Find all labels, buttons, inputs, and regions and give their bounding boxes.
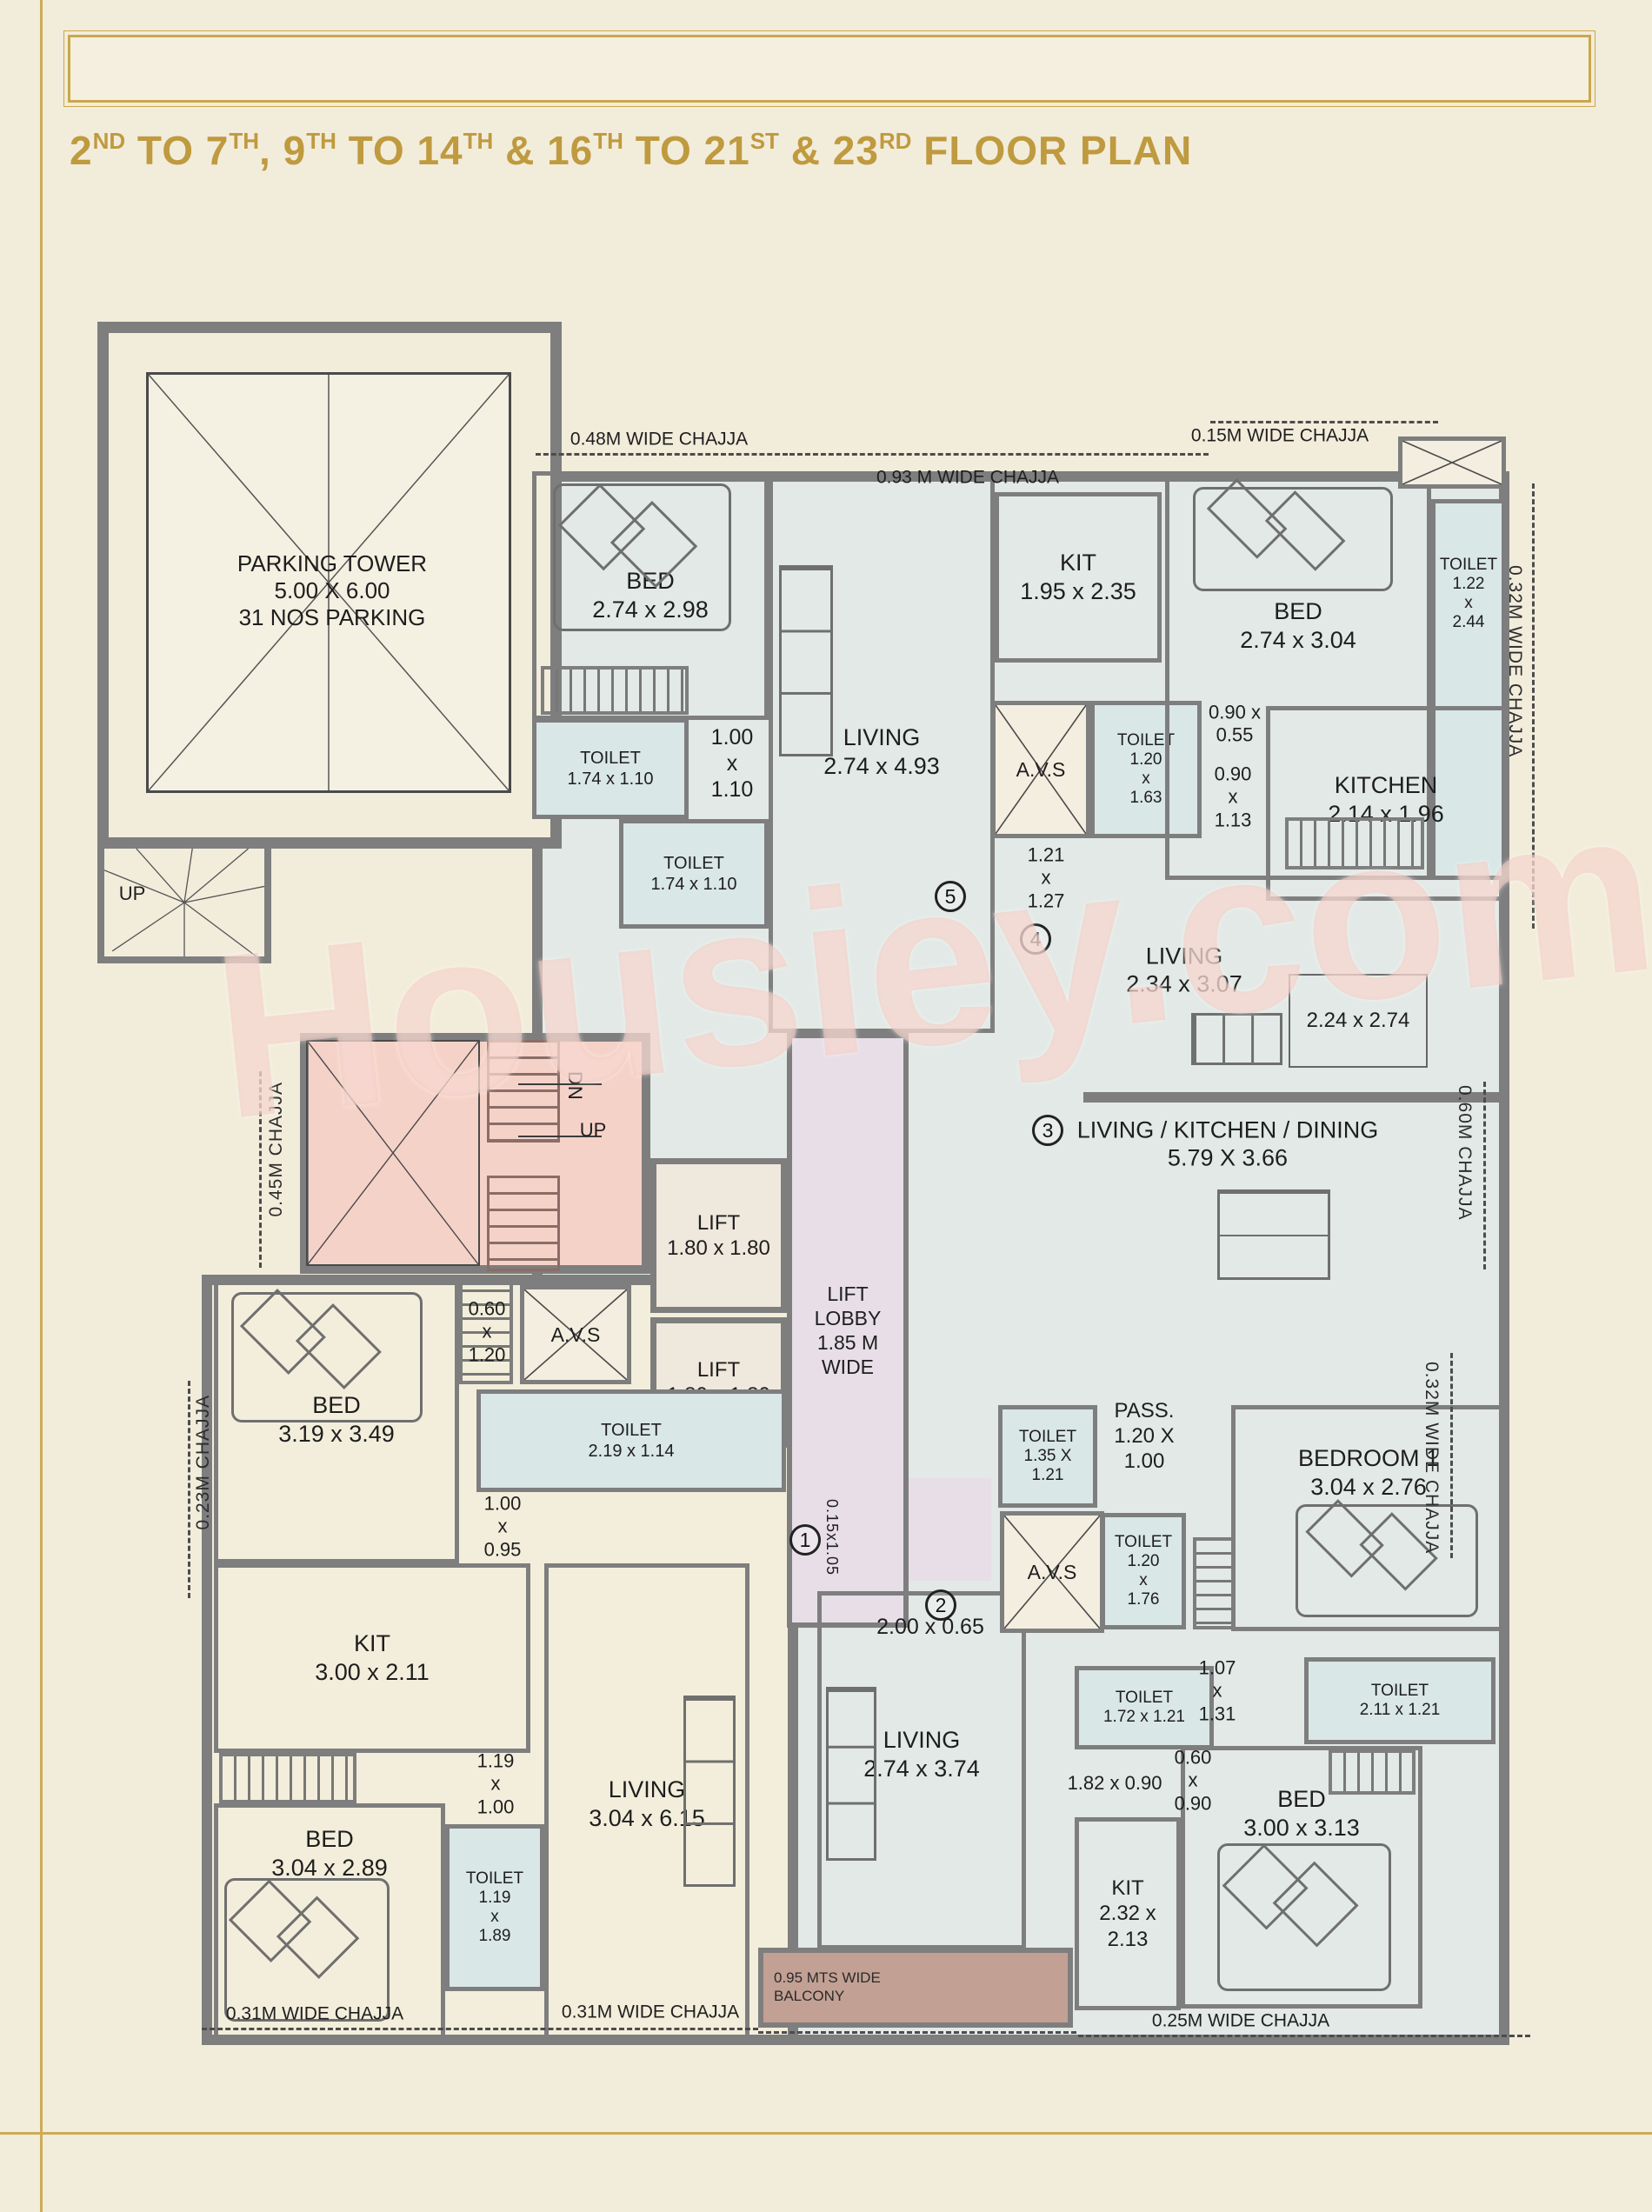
chajja-dash-right-top xyxy=(1532,483,1535,929)
living-bottom-mid-label: LIVING 2.74 x 3.74 xyxy=(863,1726,980,1783)
passage-label: PASS. 1.20 X 1.00 xyxy=(1114,1399,1174,1474)
chajja-label-top-left: 0.48M WIDE CHAJJA xyxy=(570,428,748,450)
duct-top-right xyxy=(1398,436,1506,489)
toilet-bottom-right-2-label: TOILET 2.11 x 1.21 xyxy=(1360,1682,1441,1720)
dim-015-105-vertical: 0.15x1.05 xyxy=(823,1499,841,1576)
page-title: 2ND TO 7TH, 9TH TO 14TH & 16TH TO 21ST &… xyxy=(70,127,1192,174)
dim-182-090: 1.82 x 0.90 xyxy=(1068,1772,1162,1795)
chajja-dash-top-left xyxy=(536,453,788,456)
rug-dims-label: 2.24 x 2.74 xyxy=(1307,1008,1410,1033)
chajja-dash-left-low xyxy=(188,1381,190,1598)
kit-bottom-right-label: KIT 2.32 x 2.13 xyxy=(1079,1876,1176,1952)
chajja-label-top-right: 0.15M WIDE CHAJJA xyxy=(1191,424,1369,446)
balcony: 0.95 MTS WIDE BALCONY xyxy=(758,1948,1073,2028)
chajja-label-bottom-left: 0.31M WIDE CHAJJA xyxy=(226,2002,403,2024)
stair-roof-cross xyxy=(306,1040,480,1266)
dim-121-127: 1.21 x 1.27 xyxy=(1028,843,1065,912)
toilet-bottom-right-1-label: TOILET 1.72 x 1.21 xyxy=(1103,1689,1185,1727)
frame-left-gold-line xyxy=(40,0,43,2212)
floor-plan-page: { "page": { "title_segments": [ {"t":"2"… xyxy=(0,0,1652,2212)
bed-bottom-left-label: BED 3.04 x 2.89 xyxy=(271,1825,388,1882)
dim-200-065: 2.00 x 0.65 xyxy=(876,1614,984,1640)
passage-top-left-dims: 1.00 x 1.10 xyxy=(711,724,754,803)
toilet-bottom-left-label: TOILET 1.19 x 1.89 xyxy=(466,1869,523,1945)
living-top-left-label: LIVING 2.74 x 4.93 xyxy=(823,723,940,781)
frame-top-gold-box xyxy=(68,35,1591,103)
balcony-label: 0.95 MTS WIDE BALCONY xyxy=(774,1969,881,2005)
bed-icon xyxy=(553,483,731,631)
kit-mid-left-room: KIT 3.00 x 2.11 xyxy=(214,1563,530,1753)
chajja-label-left-up: 0.45M CHAJJA xyxy=(266,1082,287,1217)
stair-dn-arrow-line xyxy=(518,1083,602,1085)
kit-mid-left-label: KIT 3.00 x 2.11 xyxy=(315,1629,430,1687)
living-kitchen-dining-label: LIVING / KITCHEN / DINING 5.79 X 3.66 xyxy=(1077,1116,1379,1173)
chajja-label-right-mid: 0.60M CHAJJA xyxy=(1454,1085,1475,1221)
chajja-label-left-low: 0.23M CHAJJA xyxy=(193,1395,214,1530)
avs-duct-2: A.V.S xyxy=(520,1285,631,1384)
toilet-bottom-right-1-room: TOILET 1.72 x 1.21 xyxy=(1075,1666,1214,1749)
chajja-label-right-top: 0.32M WIDE CHAJJA xyxy=(1504,565,1525,757)
unit-circle-1: 1 xyxy=(789,1524,821,1556)
toilet-core-label: TOILET 2.19 x 1.14 xyxy=(589,1420,675,1462)
chajja-dash-right-low xyxy=(1450,1353,1453,1558)
wardrobe-hatch xyxy=(541,666,689,715)
wall-living-lkd xyxy=(1083,1092,1509,1103)
bed-icon xyxy=(1193,487,1393,591)
chajja-label-right-low: 0.32M WIDE CHAJJA xyxy=(1421,1362,1442,1554)
toilet-passage-room: TOILET 1.35 X 1.21 xyxy=(998,1405,1097,1508)
unit-circle-3: 3 xyxy=(1032,1115,1063,1146)
wardrobe-hatch xyxy=(219,1753,356,1803)
ladder-hatch-bedroom1 xyxy=(1193,1537,1235,1629)
lift-lobby-extension xyxy=(909,1478,991,1581)
bedroom1-label: BEDROOM 1 3.04 x 2.76 xyxy=(1298,1444,1439,1502)
bed-icon xyxy=(224,1878,390,2022)
avs-duct-3-label: A.V.S xyxy=(1028,1560,1077,1584)
dim-090-113: 0.90 x 1.13 xyxy=(1215,763,1252,831)
parking-tower-label: PARKING TOWER 5.00 X 6.00 31 NOS PARKING xyxy=(237,550,427,632)
avs-duct-1: A.V.S xyxy=(991,701,1090,838)
sofa-icon xyxy=(1191,1013,1282,1065)
toilet-passage-label: TOILET 1.35 X 1.21 xyxy=(1019,1428,1076,1485)
chajja-dash-bottom-mid xyxy=(758,2031,1076,2034)
dim-119-100: 1.19 x 1.00 xyxy=(477,1749,515,1818)
toilet-bottom-left-room: TOILET 1.19 x 1.89 xyxy=(445,1824,544,1991)
kitchen-top-right-room: KITCHEN 2.14 x 1.96 xyxy=(1266,706,1506,901)
stair-flight-upper xyxy=(487,1040,560,1143)
lift-1: LIFT 1.80 x 1.80 xyxy=(650,1158,787,1313)
wardrobe-hatch xyxy=(1285,817,1424,869)
chajja-dash-top-mid xyxy=(789,453,1209,456)
chajja-dash-right-mid xyxy=(1483,1082,1486,1269)
toilet-top-left-2-room: TOILET 1.74 x 1.10 xyxy=(619,819,769,929)
dim-107-131: 1.07 x 1.31 xyxy=(1199,1656,1236,1725)
toilet-bedroom1-label: TOILET 1.20 x 1.76 xyxy=(1115,1533,1172,1609)
dim-060-090: 0.60 x 0.90 xyxy=(1175,1746,1212,1815)
kit-bottom-right-room: KIT 2.32 x 2.13 xyxy=(1075,1817,1181,2010)
unit-circle-4: 4 xyxy=(1020,923,1051,955)
dining-table-icon xyxy=(1217,1189,1330,1280)
unit-circle-5: 5 xyxy=(935,881,966,912)
bed-icon xyxy=(1217,1843,1391,1991)
sofa-icon xyxy=(826,1687,876,1861)
toilet-top-left-1-label: TOILET 1.74 x 1.10 xyxy=(568,748,654,790)
chajja-label-top-mid: 0.93 M WIDE CHAJJA xyxy=(876,466,1059,488)
stair-up-label: UP xyxy=(580,1119,607,1142)
toilet-top-left-1-room: TOILET 1.74 x 1.10 xyxy=(532,718,689,819)
chajja-dash-top-right xyxy=(1210,421,1438,423)
rug-area: 2.24 x 2.74 xyxy=(1289,974,1428,1068)
toilet-bottom-right-2-room: TOILET 2.11 x 1.21 xyxy=(1304,1657,1495,1744)
stair-flight-lower xyxy=(487,1176,560,1271)
avs-duct-2-label: A.V.S xyxy=(551,1323,601,1347)
frame-bottom-gold-line xyxy=(0,2132,1652,2135)
toilet-top-right-label: TOILET 1.22 x 2.44 xyxy=(1440,556,1497,631)
chajja-dash-left-up xyxy=(259,1071,262,1268)
sofa-icon xyxy=(779,565,833,756)
sofa-icon xyxy=(683,1696,736,1887)
avs-duct-3: A.V.S xyxy=(1000,1511,1104,1633)
unit-circle-2: 2 xyxy=(925,1589,956,1621)
bed-top-right-label: BED 2.74 x 3.04 xyxy=(1240,597,1356,655)
stair-dn-label: DN xyxy=(563,1071,586,1101)
toilet-top-left-2-label: TOILET 1.74 x 1.10 xyxy=(651,853,737,896)
lift-lobby-label: LIFT LOBBY 1.85 M WIDE xyxy=(792,1282,903,1379)
kit-top-left-label: KIT 1.95 x 2.35 xyxy=(1020,549,1136,606)
dim-090-055: 0.90 x 0.55 xyxy=(1209,702,1261,748)
chajja-label-bottom-right: 0.25M WIDE CHAJJA xyxy=(1152,2009,1329,2031)
wardrobe-hatch xyxy=(1329,1749,1416,1795)
bed-icon xyxy=(231,1292,423,1422)
toilet-bedroom1-room: TOILET 1.20 x 1.76 xyxy=(1101,1513,1186,1629)
lift-1-label: LIFT 1.80 x 1.80 xyxy=(667,1210,770,1262)
kit-top-left-room: KIT 1.95 x 2.35 xyxy=(995,492,1162,663)
chajja-dash-bottom-left xyxy=(202,2028,758,2030)
chajja-dash-bottom-right xyxy=(1078,2035,1530,2037)
chajja-label-bottom-mid: 0.31M WIDE CHAJJA xyxy=(562,2001,739,2022)
avs-duct-1-label: A.V.S xyxy=(1016,757,1066,782)
dim-100-095: 1.00 x 0.95 xyxy=(484,1492,522,1561)
parking-stair-up-label: UP xyxy=(119,883,146,905)
toilet-core-room: TOILET 2.19 x 1.14 xyxy=(476,1389,786,1492)
dim-060-120: 0.60 x 1.20 xyxy=(469,1297,506,1366)
living-right-label: LIVING 2.34 x 3.07 xyxy=(1126,943,1242,999)
